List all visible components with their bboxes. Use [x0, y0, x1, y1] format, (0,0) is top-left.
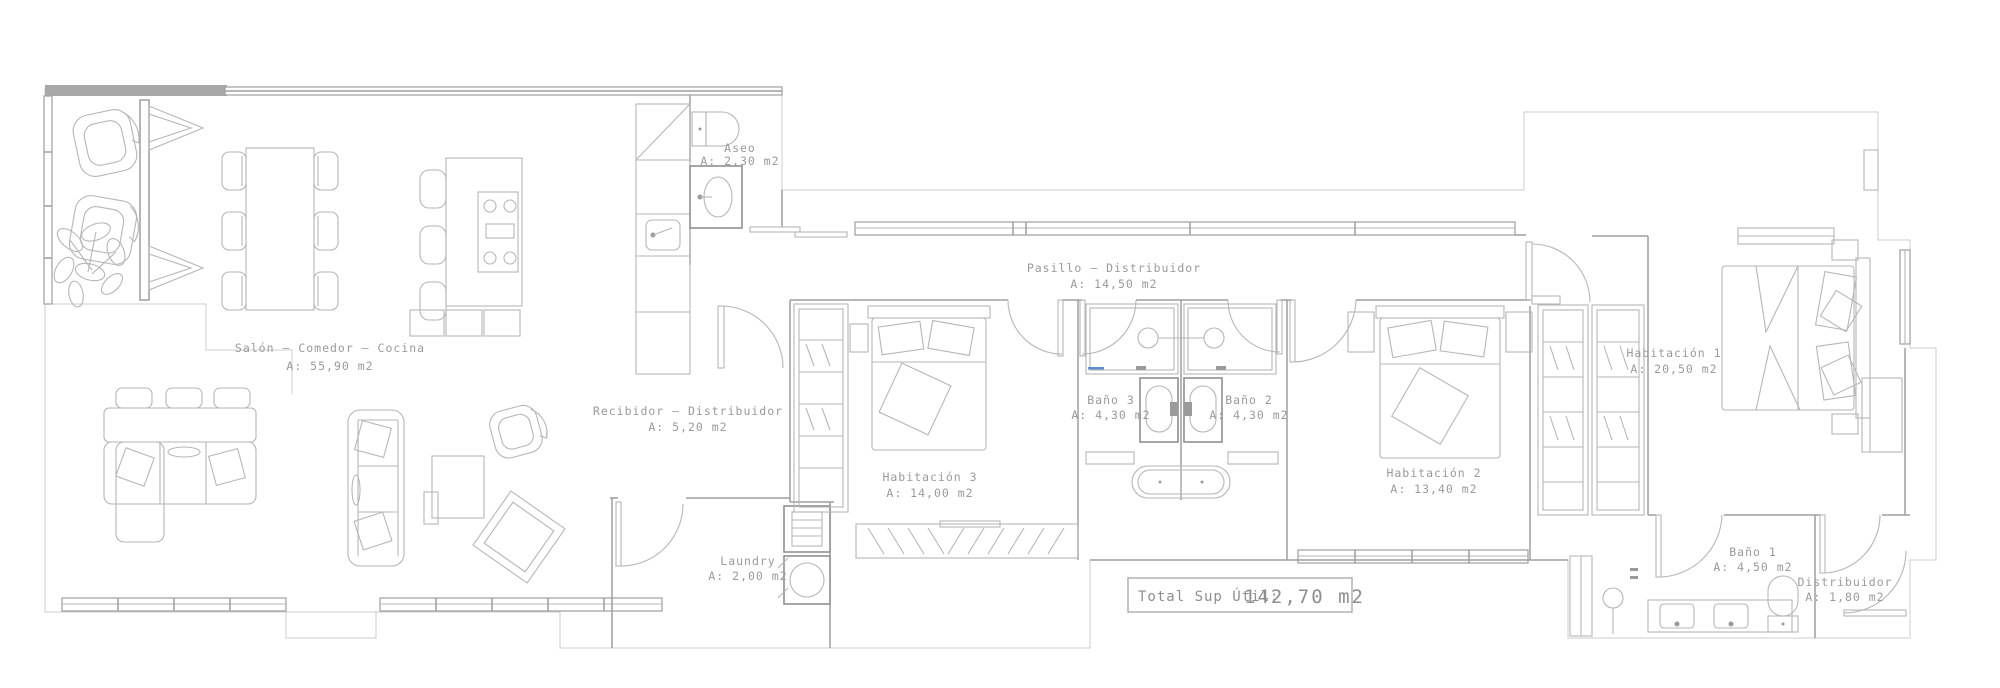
entry-door — [718, 306, 783, 368]
room-area-salon: A: 55,90 m2 — [286, 359, 373, 373]
coffee-table — [432, 456, 484, 518]
kitchen-wall-cabinets — [636, 104, 690, 374]
room-label-bano2: Baño 2 — [1225, 393, 1273, 407]
dryer-icon — [784, 506, 830, 552]
bedroom1-furniture — [1722, 150, 1902, 452]
swivel-armchair-icon — [487, 401, 552, 461]
shower-screen — [1570, 556, 1592, 636]
terrace-folding-doors — [140, 100, 203, 300]
kitchen-island — [410, 158, 522, 336]
aseo-fixtures — [690, 112, 742, 228]
room-label-habitacion2: Habitación 2 — [1386, 466, 1481, 480]
bedroom3-furniture — [794, 304, 1078, 558]
washbasin-icon — [690, 166, 742, 228]
shower-head-icon — [1603, 588, 1623, 634]
wall-unit — [1864, 150, 1878, 190]
room-area-bano3: A: 4,30 m2 — [1071, 408, 1150, 422]
room-area-bano1: A: 4,50 m2 — [1713, 560, 1792, 574]
room-label-recibidor: Recibidor — Distribuidor — [593, 404, 783, 418]
dining-table — [246, 148, 314, 310]
side-table — [424, 492, 438, 524]
bedroom3-door — [1008, 300, 1063, 356]
room-label-aseo: Aseo — [724, 141, 756, 155]
room-area-habitacion3: A: 14,00 m2 — [886, 486, 973, 500]
bench-icon — [856, 521, 1078, 558]
plant-icon — [50, 219, 128, 308]
room-labels: Salón — Comedor — Cocina A: 55,90 m2 Ase… — [235, 141, 1893, 604]
total-area-value: 142,70 m2 — [1244, 586, 1365, 608]
bed-icon — [868, 306, 990, 450]
bed-icon — [1376, 306, 1504, 458]
total-area-box: Total Sup Útil: 142,70 m2 — [1128, 578, 1365, 612]
room-area-distribuidor: A: 1,80 m2 — [1805, 590, 1884, 604]
floor-plan-drawing: Salón — Comedor — Cocina A: 55,90 m2 Ase… — [0, 0, 2000, 688]
distribuidor-door — [1820, 515, 1880, 573]
terrace-furniture — [50, 105, 146, 308]
floor-plan-canvas: Salón — Comedor — Cocina A: 55,90 m2 Ase… — [0, 0, 2000, 688]
room-label-distribuidor: Distribuidor — [1797, 575, 1892, 589]
living-furniture — [104, 388, 565, 583]
desk — [1862, 378, 1902, 452]
lounge-chair-icon — [70, 105, 145, 179]
nightstand — [850, 324, 868, 352]
room-label-bano1: Baño 1 — [1729, 545, 1777, 559]
dining-furniture — [222, 148, 338, 310]
bedroom2-door — [1290, 300, 1356, 362]
room-label-bano3: Baño 3 — [1087, 393, 1135, 407]
closet-icon — [1592, 305, 1644, 515]
kitchen-sink-icon — [646, 220, 680, 250]
room-area-pasillo: A: 14,50 m2 — [1070, 277, 1157, 291]
room-label-salon: Salón — Comedor — Cocina — [235, 341, 425, 355]
room-area-habitacion1: A: 20,50 m2 — [1630, 362, 1717, 376]
kitchen-furniture — [410, 104, 690, 374]
room-label-pasillo: Pasillo — Distribuidor — [1027, 261, 1201, 275]
room-area-habitacion2: A: 13,40 m2 — [1390, 482, 1477, 496]
hall-to-bedroom1-door — [1526, 242, 1590, 304]
floor-cushion-icon — [473, 491, 565, 583]
sliding-door-leaf — [795, 232, 847, 237]
closet-icon — [1538, 305, 1588, 515]
bath1-door — [1656, 515, 1722, 577]
closet-icon — [794, 304, 848, 512]
room-label-laundry: Laundry — [720, 554, 775, 568]
room-area-laundry: A: 2,00 m2 — [708, 569, 787, 583]
shelf — [1228, 452, 1278, 464]
toilet-icon — [1768, 576, 1798, 632]
sofa-2-icon — [348, 410, 404, 566]
room-label-habitacion3: Habitación 3 — [882, 470, 977, 484]
sliding-door — [750, 227, 800, 232]
bedroom2-furniture — [1348, 306, 1532, 458]
terrace-left-window — [44, 96, 52, 304]
laundry-appliances — [778, 506, 830, 604]
nightstand — [1506, 312, 1532, 352]
nightstand — [1348, 312, 1374, 352]
wardrobes — [1538, 305, 1644, 515]
shower-icon — [1086, 304, 1181, 374]
bed-icon — [1722, 258, 1870, 418]
nightstand — [1832, 240, 1858, 260]
room-area-bano2: A: 4,30 m2 — [1209, 408, 1288, 422]
lounge-chair-icon — [67, 193, 143, 267]
legal-blue-mark — [1088, 367, 1104, 370]
shower-icon — [1181, 304, 1276, 374]
room-area-recibidor: A: 5,20 m2 — [648, 420, 727, 434]
room-label-habitacion1: Habitación 1 — [1626, 346, 1721, 360]
kitchen-stools — [420, 170, 446, 320]
nightstand — [1832, 414, 1858, 434]
double-bathtub-icon — [1132, 466, 1230, 498]
sofa-l-icon — [104, 388, 256, 542]
terrace-top-wall — [45, 85, 227, 96]
shelf — [1086, 452, 1134, 464]
room-area-aseo: A: 2,30 m2 — [700, 154, 779, 168]
laundry-door — [616, 502, 683, 566]
